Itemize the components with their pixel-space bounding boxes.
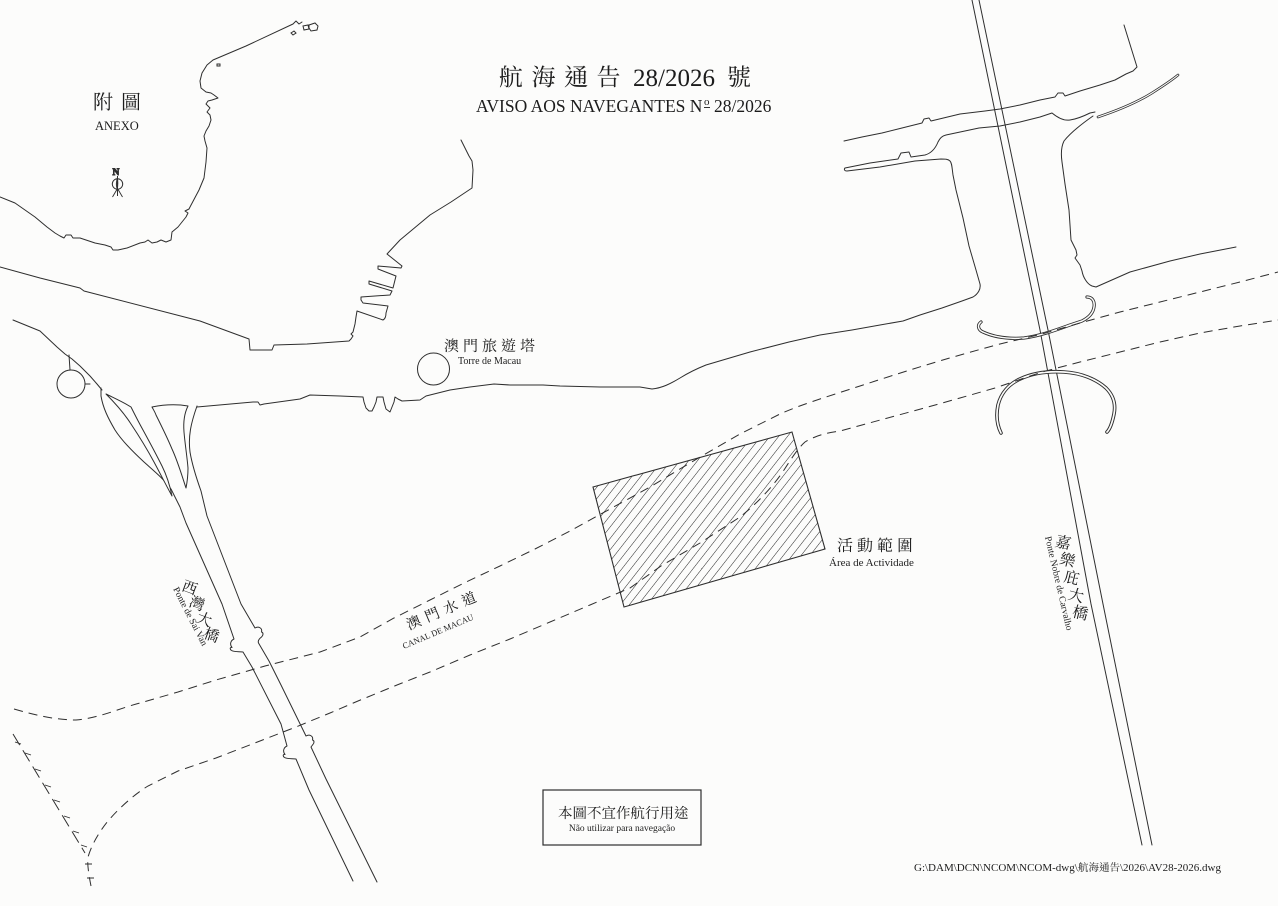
svg-text:Não utilizar para navegação: Não utilizar para navegação (569, 824, 676, 834)
svg-text:Área de Actividade: Área de Actividade (829, 557, 914, 569)
svg-text:ANEXO: ANEXO (95, 119, 139, 133)
svg-text:G:\DAM\DCN\NCOM\NCOM-dwg\: G:\DAM\DCN\NCOM\NCOM-dwg\ (914, 862, 1079, 874)
svg-text:28/2026: 28/2026 (714, 96, 772, 116)
svg-text:o: o (704, 96, 710, 108)
svg-text:\2026\AV28-2026.dwg: \2026\AV28-2026.dwg (1120, 862, 1221, 874)
svg-text:AVISO AOS NAVEGANTES N: AVISO AOS NAVEGANTES N (476, 96, 703, 116)
svg-text:Torre de Macau: Torre de Macau (458, 356, 521, 367)
svg-text:N: N (113, 168, 120, 178)
svg-text:28/2026: 28/2026 (633, 65, 715, 92)
